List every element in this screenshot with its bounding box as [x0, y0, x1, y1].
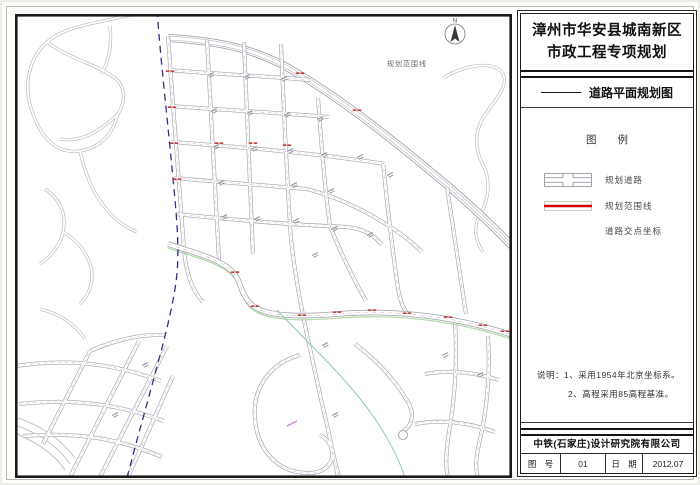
double-rule-bottom — [521, 428, 693, 436]
boundary-line-symbol — [543, 201, 593, 211]
date-value: 2012.07 — [643, 454, 693, 473]
drawing-name-row: 道路平面规划图 — [521, 78, 693, 108]
drawing-name: 道路平面规划图 — [589, 84, 673, 101]
date-label: 日 期 — [606, 454, 643, 473]
subtitle-dash — [541, 92, 581, 93]
legend-item-intersection-coords: 道路交点坐标 — [543, 225, 693, 237]
title-block-footer: 中铁(石家庄)设计研究院有限公司 图 号 01 日 期 2012.07 — [521, 423, 693, 473]
legend-label-boundary-line: 规划范围线 — [605, 200, 653, 212]
legend-heading: 图 例 — [521, 132, 693, 147]
road-cross-icon — [544, 173, 592, 187]
double-rule — [521, 70, 693, 78]
cul-de-sac-circle — [399, 431, 408, 440]
notes: 说明：1、采用1954年北京坐标系。 2、高程采用85高程基准。 — [537, 366, 680, 405]
project-title-line2: 市政工程专项规划 — [525, 43, 689, 65]
drawing-sheet: 规划范围线 N 漳州市华安县城南新区 市政工程专项规划 道路平面规划图 — [0, 0, 700, 485]
legend-rows: 规划道路 规划范围线 道路交点坐标 — [521, 173, 693, 237]
red-line-icon — [544, 201, 592, 211]
note-line1: 说明：1、采用1954年北京坐标系。 — [537, 366, 680, 386]
legend-section: 图 例 — [521, 108, 693, 424]
sheet-info-row: 图 号 01 日 期 2012.07 — [521, 454, 693, 473]
title-block-panel: 漳州市华安县城南新区 市政工程专项规划 道路平面规划图 图 例 — [517, 10, 697, 477]
compass-north-letter: N — [453, 18, 458, 25]
project-title: 漳州市华安县城南新区 市政工程专项规划 — [521, 14, 693, 70]
planned-road-symbol — [543, 173, 593, 187]
map-background — [15, 14, 512, 478]
company-name: 中铁(石家庄)设计研究院有限公司 — [521, 436, 693, 454]
legend-item-boundary-line: 规划范围线 — [543, 200, 693, 212]
title-block-inner: 漳州市华安县城南新区 市政工程专项规划 道路平面规划图 图 例 — [520, 13, 694, 474]
legend-label-intersection-coords: 道路交点坐标 — [605, 225, 662, 237]
sheet-no-value: 01 — [561, 454, 606, 473]
project-title-line1: 漳州市华安县城南新区 — [525, 21, 689, 43]
road-plan-map: 规划范围线 N — [15, 14, 512, 478]
note-line2: 2、高程采用85高程基准。 — [537, 385, 680, 405]
legend-label-planned-road: 规划道路 — [605, 174, 643, 186]
map-canvas: 规划范围线 N — [15, 14, 512, 478]
legend-item-planned-road: 规划道路 — [543, 173, 693, 187]
sheet-no-label: 图 号 — [521, 454, 561, 473]
boundary-line-label: 规划范围线 — [387, 59, 427, 68]
